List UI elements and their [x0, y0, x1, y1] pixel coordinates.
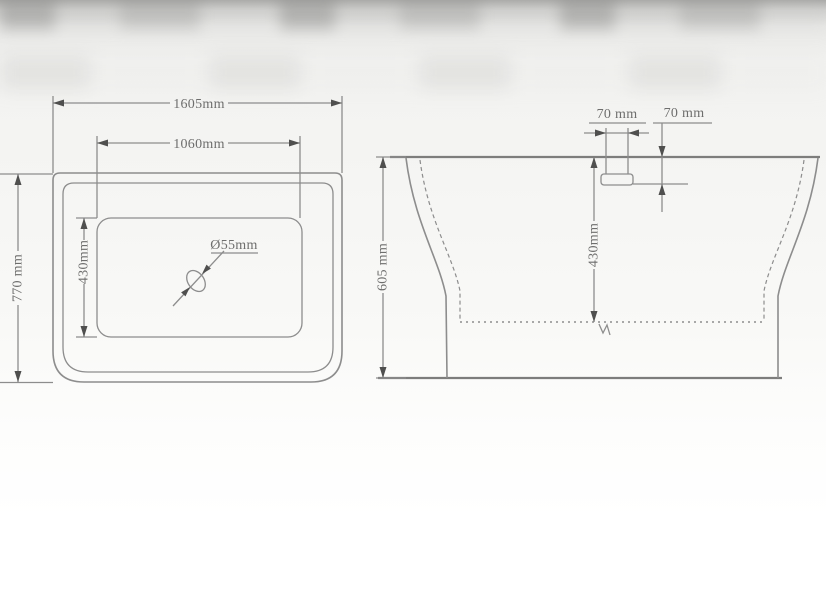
arrowhead [591, 311, 598, 322]
dim-inner-depth-side-view: 430mm [587, 157, 611, 335]
dim-label-inner-width: 1060mm [173, 137, 225, 152]
arrowhead [15, 174, 22, 185]
dim-inner-width: 1060mm [97, 136, 300, 218]
arrowhead [380, 367, 387, 378]
dim-label-overall-height: 605 mm [376, 243, 391, 291]
dim-overflow-drop: 70 mm [653, 106, 712, 212]
bathtub-top-view: 1605mm 1060mm 770 mm [0, 96, 342, 383]
dim-label-overflow-width: 70 mm [597, 107, 638, 122]
tub-inner-right-wall-dashed [764, 160, 804, 321]
tub-inner-left-wall-dashed [420, 160, 460, 321]
arrowhead [289, 140, 300, 147]
leader-line [173, 251, 224, 306]
drain-hole-callout: Ø55mm [173, 238, 258, 306]
dim-label-overflow-drop: 70 mm [664, 106, 705, 121]
dim-label-outer-depth: 770 mm [11, 254, 26, 302]
arrowhead [628, 130, 639, 137]
arrowhead [380, 157, 387, 168]
arrowhead [53, 100, 64, 107]
drawing-canvas: 1605mm 1060mm 770 mm [0, 0, 826, 600]
arrowhead [81, 326, 88, 337]
dim-label-inner-depth: 430mm [587, 223, 602, 267]
arrowhead [659, 146, 666, 157]
dim-label-drain-diameter: Ø55mm [210, 238, 257, 253]
fitting-body [601, 174, 633, 185]
bathtub-side-view: 605 mm 430mm [376, 106, 821, 378]
arrowhead [595, 130, 606, 137]
dim-inner-depth-top-view: 430mm [76, 218, 97, 337]
dim-label-inner-depth: 430mm [77, 240, 92, 284]
arrowhead [331, 100, 342, 107]
dim-outer-depth: 770 mm [0, 174, 53, 383]
dim-overflow-width: 70 mm [584, 107, 649, 137]
arrowhead [15, 371, 22, 382]
arrowhead [659, 184, 666, 195]
drain-mark [599, 324, 610, 335]
arrowhead [591, 157, 598, 168]
arrowhead [97, 140, 108, 147]
tub-inner-rim-outline [63, 183, 333, 372]
dim-label-outer-width: 1605mm [173, 97, 225, 112]
technical-drawing: 1605mm 1060mm 770 mm [0, 0, 826, 600]
arrowhead [81, 218, 88, 229]
dim-overall-height: 605 mm [376, 157, 407, 378]
